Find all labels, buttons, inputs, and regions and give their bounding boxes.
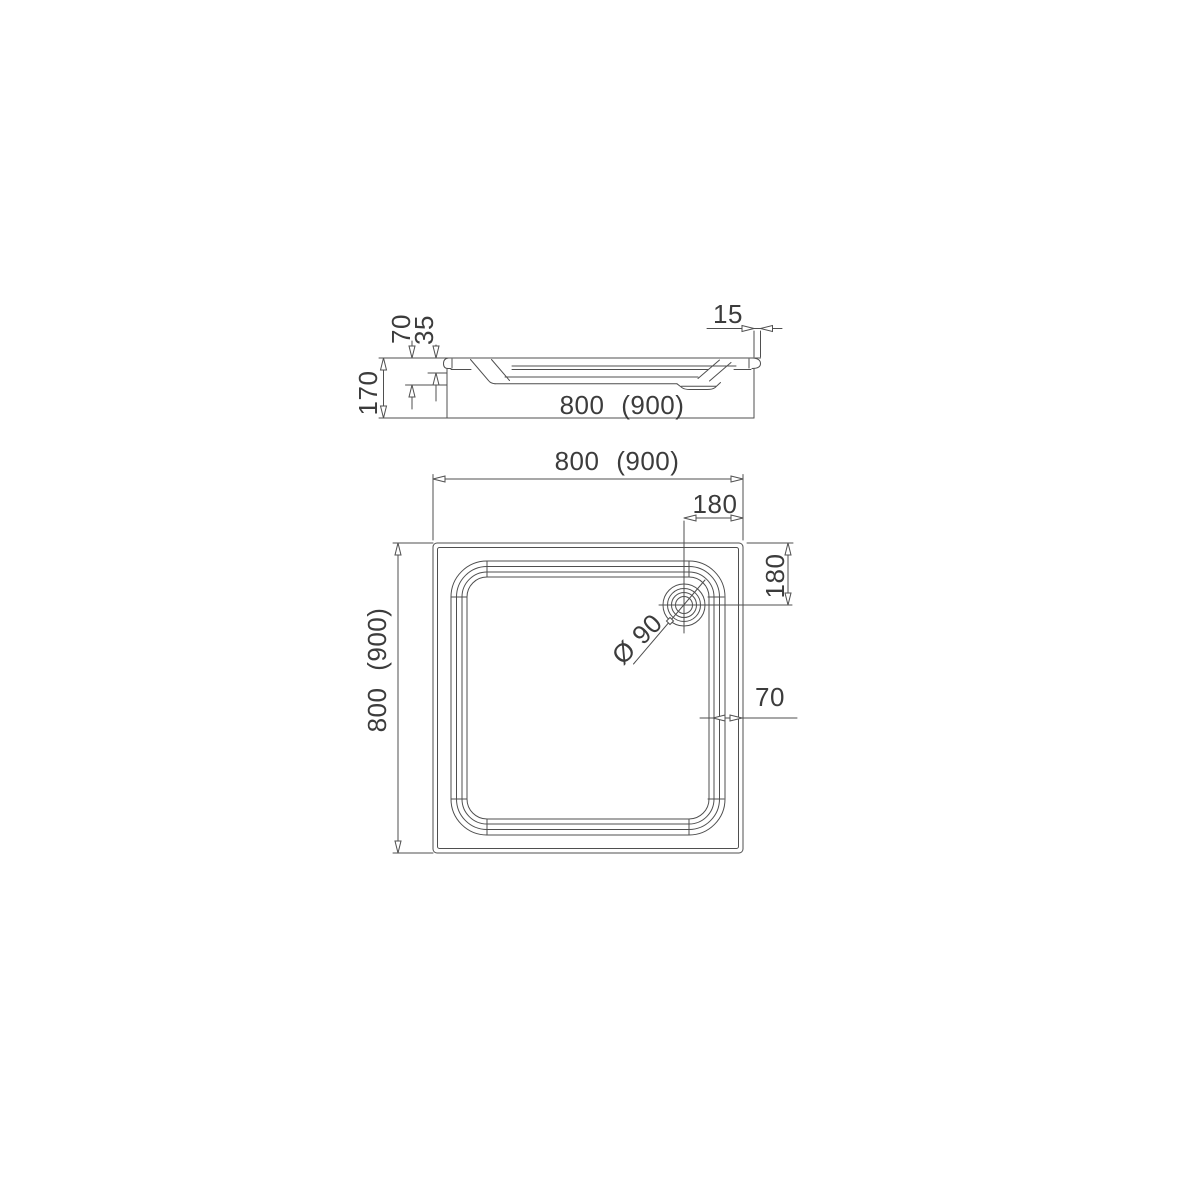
technical-drawing-canvas: 70 35 170 15 800 (900) 800 (900) 180 180… [0, 0, 1200, 1200]
plan-width-label: 800 (900) [555, 448, 680, 474]
side-width-label: 800 (900) [560, 392, 685, 418]
side-edge-offset-label: 15 [713, 301, 743, 327]
plan-rim-width-label: 70 [755, 684, 785, 710]
plan-depth-label: 800 (900) [364, 608, 390, 733]
drawing-geometry [0, 0, 1200, 1200]
plan-drain-offset-y-label: 180 [762, 554, 788, 599]
plan-view-dimension-lines [393, 475, 797, 854]
side-inner-depth-label: 35 [411, 315, 437, 345]
plan-view-arrowheads [395, 476, 791, 853]
plan-drain-offset-x-label: 180 [693, 491, 738, 517]
side-total-height-label: 170 [355, 371, 381, 416]
